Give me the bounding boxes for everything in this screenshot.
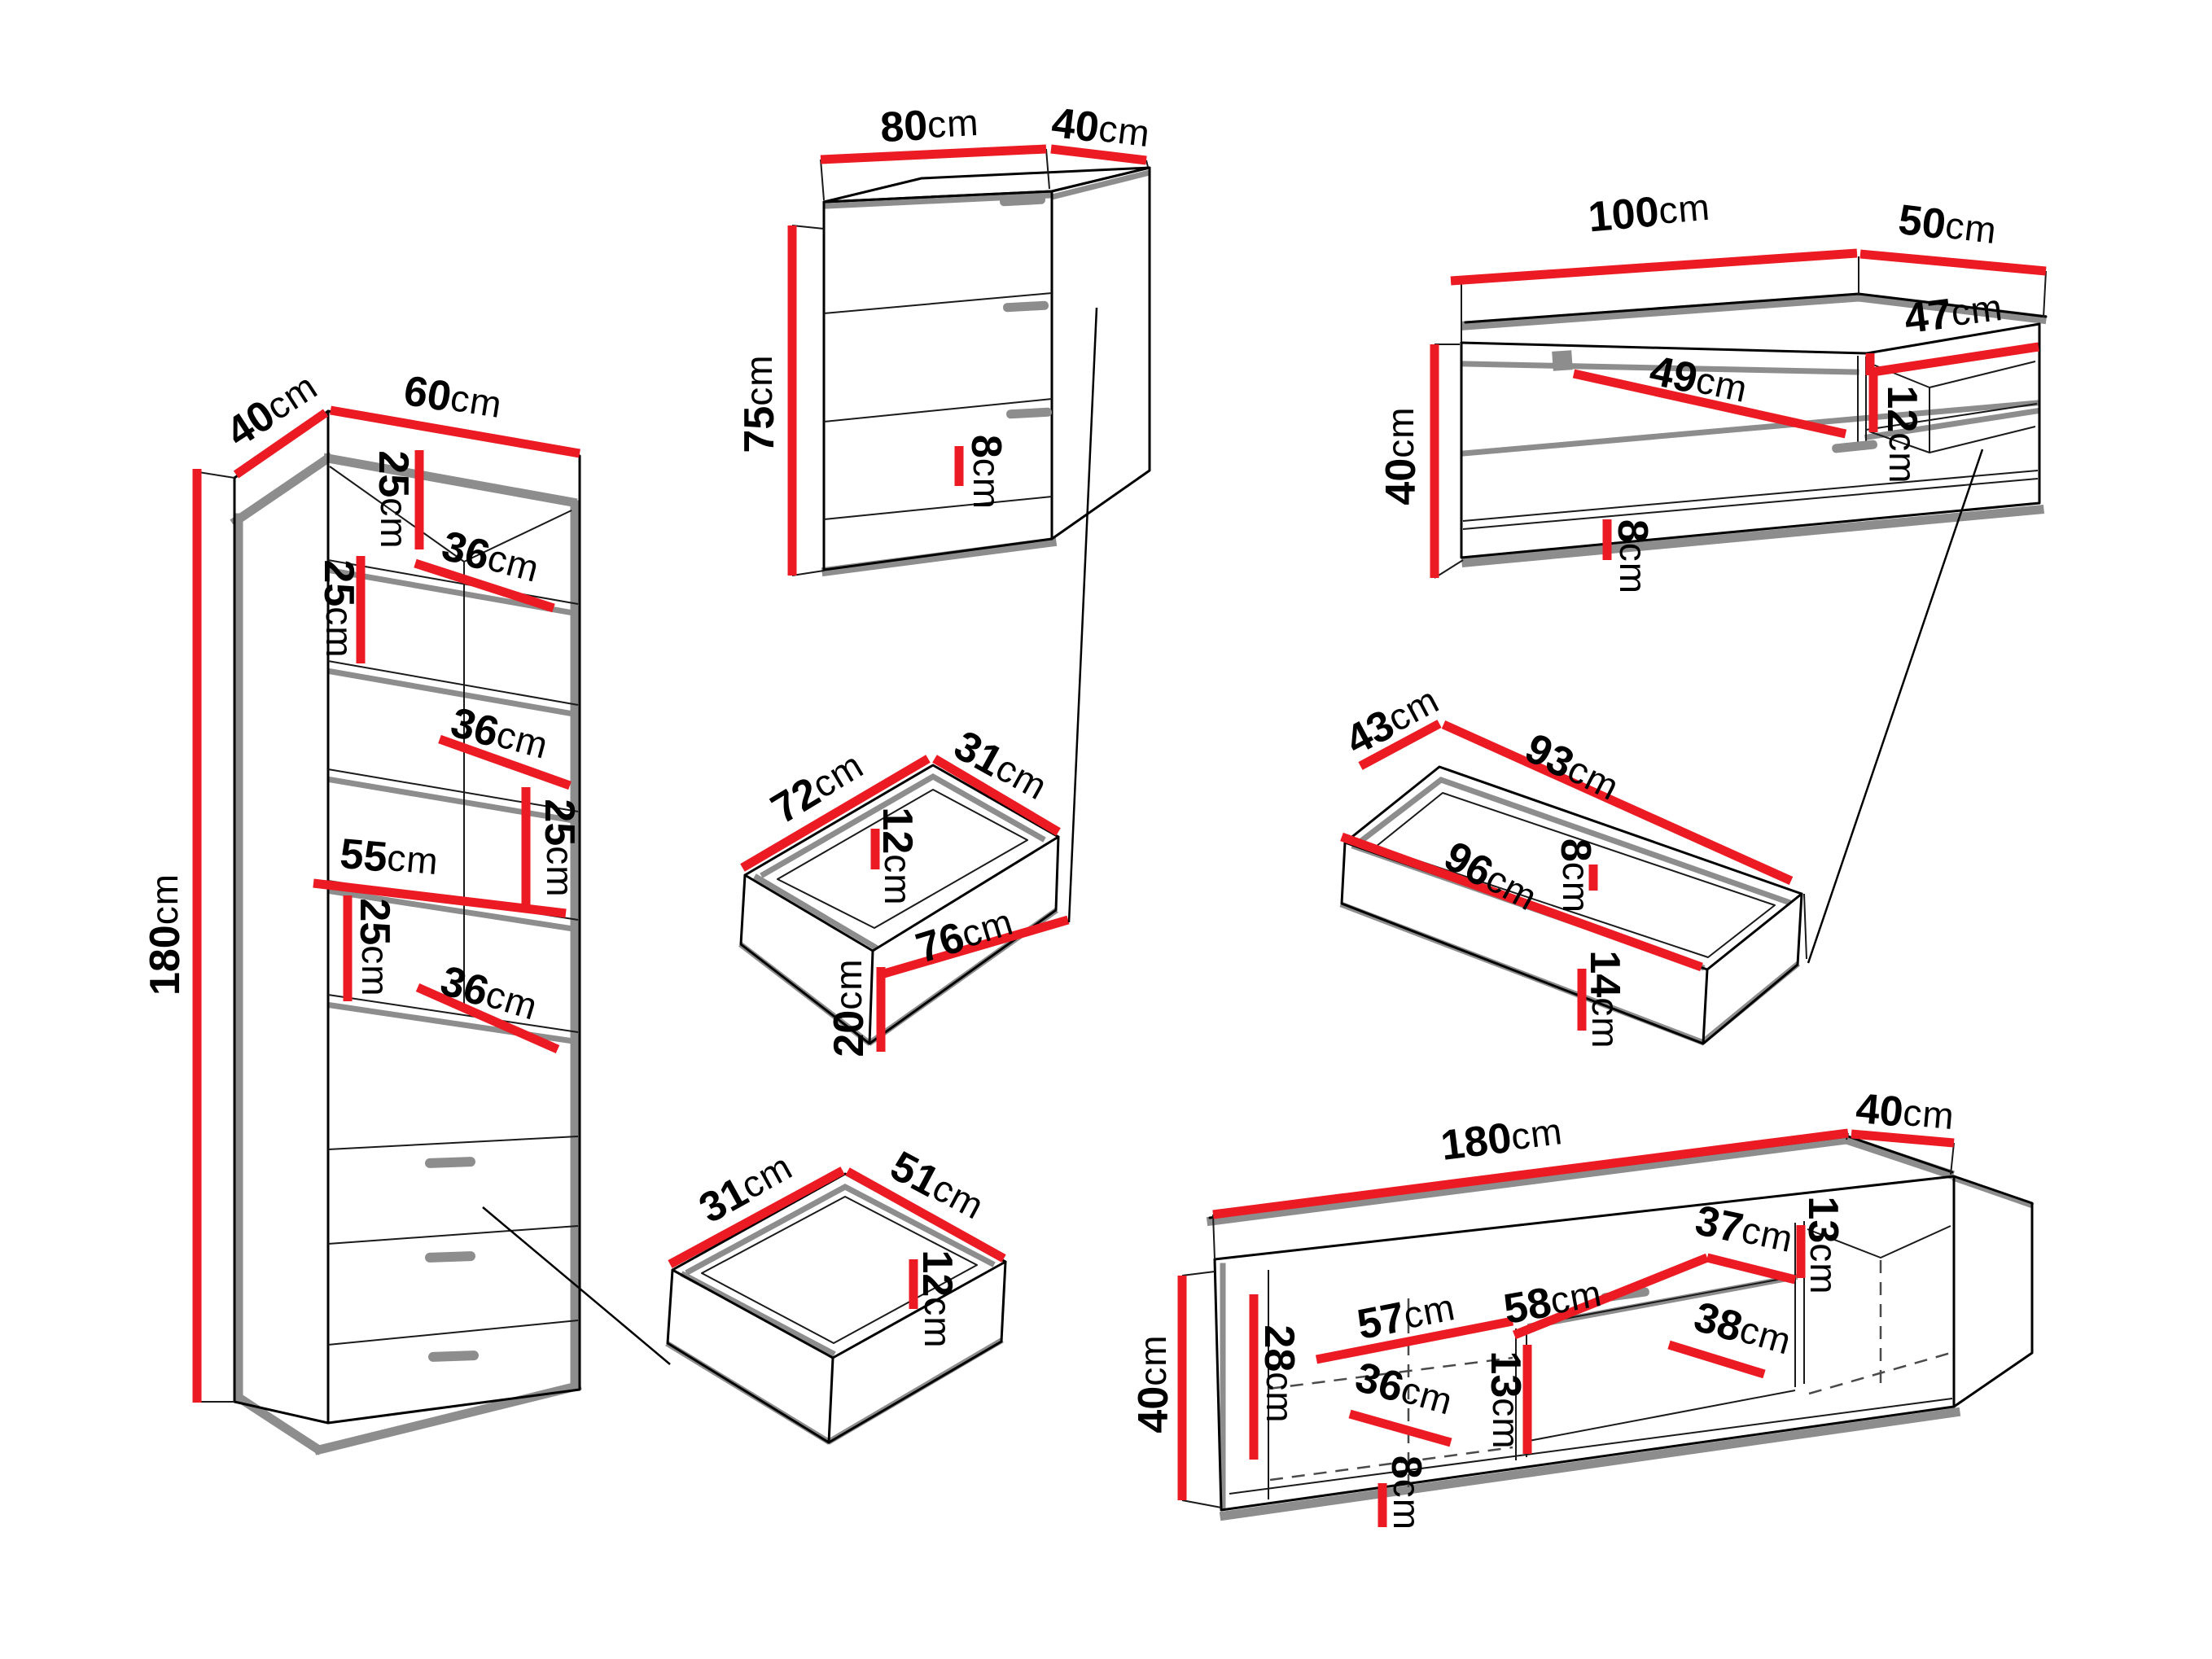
dim-drawerlong-height: 14cm xyxy=(1581,950,1628,1048)
dim-tvstand-divider-right: 13cm xyxy=(1799,1196,1846,1294)
dim-bookcase-gap3: 25cm xyxy=(536,799,583,897)
dim-tvstand-inner-height: 28cm xyxy=(1255,1324,1303,1423)
dim-chest-height: 75cm xyxy=(736,354,783,453)
dim-chest-plinth: 8cm xyxy=(962,435,1010,510)
dim-bookcase-height: 180cm xyxy=(142,873,189,996)
dim-tvstand-width: 180cm xyxy=(1439,1108,1566,1170)
dim-chest-width: 80cm xyxy=(879,99,980,151)
dim-drawerlong-inner: 8cm xyxy=(1552,838,1599,913)
drawer-handle-icon xyxy=(428,1350,479,1362)
dim-tvstand-divider-left: 13cm xyxy=(1482,1350,1529,1449)
drawer-handle-icon xyxy=(425,1251,475,1263)
dim-bookcase-gap2: 25cm xyxy=(315,559,362,658)
dim-tvcabinet-depth: 50cm xyxy=(1896,196,2000,255)
dim-drawermed-height: 20cm xyxy=(826,958,873,1057)
door-handle-icon xyxy=(1552,350,1573,371)
dim-drawermed-inner: 12cm xyxy=(874,807,921,905)
chest-drawing xyxy=(792,149,1150,576)
dim-bookcase-gap4: 25cm xyxy=(351,898,398,996)
dim-bookcase-width: 60cm xyxy=(401,367,506,429)
dim-tvcabinet-shelfgap: 12cm xyxy=(1878,385,1925,484)
dim-drawerlong-length: 93cm xyxy=(1518,724,1627,812)
dim-bookcase-gap1: 25cm xyxy=(370,450,417,549)
diagram-canvas: 40cm 60cm 180cm 25cm 36cm 25cm 36cm 25cm… xyxy=(0,0,2212,1659)
dim-tvstand-plinth: 8cm xyxy=(1382,1455,1430,1530)
drawer-handle-icon xyxy=(425,1157,475,1168)
dim-tvcabinet-height: 40cm xyxy=(1378,406,1425,505)
dim-tvstand-depth: 40cm xyxy=(1854,1085,1956,1140)
dim-tvcabinet-plinth: 8cm xyxy=(1609,519,1656,594)
dim-drawersmall-inner: 12cm xyxy=(913,1250,961,1348)
tv-stand-drawing xyxy=(1182,1133,2032,1527)
dim-tvcabinet-width: 100cm xyxy=(1586,183,1712,241)
furniture-dimension-diagram: 40cm 60cm 180cm 25cm 36cm 25cm 36cm 25cm… xyxy=(0,0,2212,1659)
dim-tvstand-height: 40cm xyxy=(1130,1334,1177,1433)
